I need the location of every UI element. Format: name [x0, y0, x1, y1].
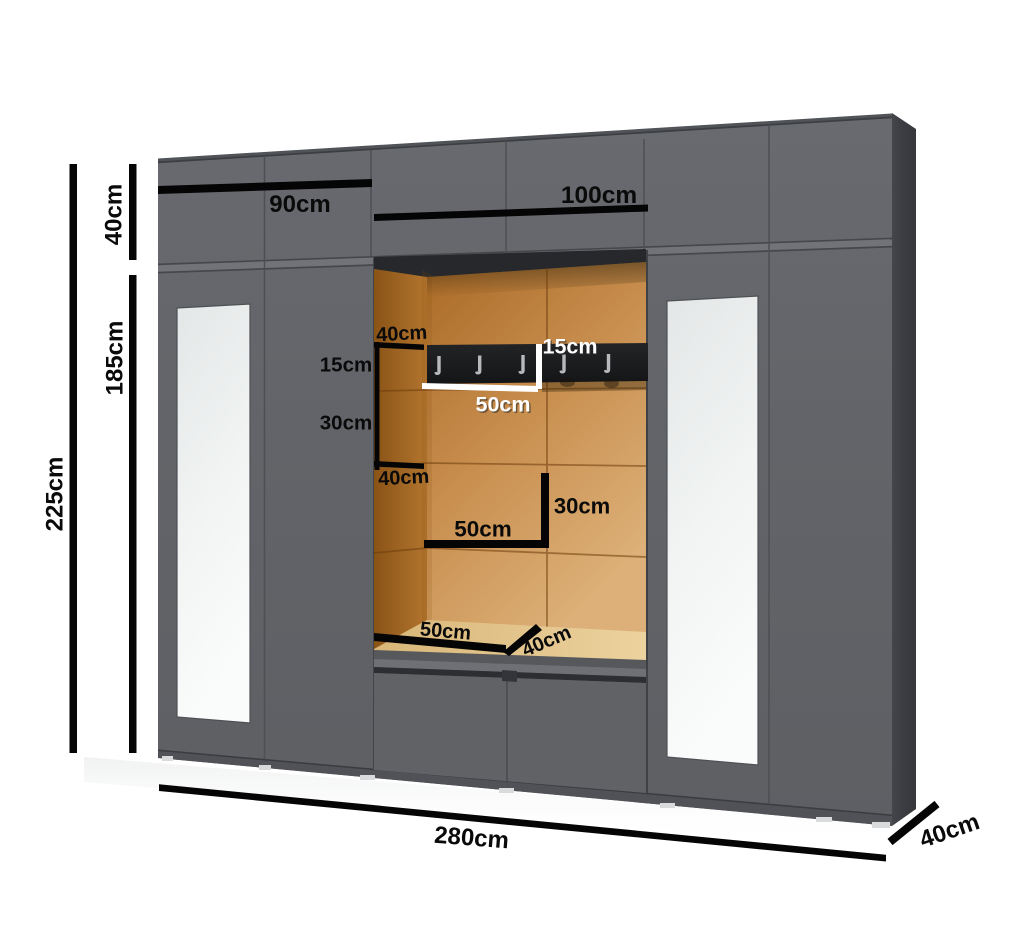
svg-text:15cm: 15cm: [320, 354, 372, 377]
svg-text:40cm: 40cm: [376, 322, 428, 347]
svg-text:50cm: 50cm: [454, 517, 512, 542]
svg-text:50cm: 50cm: [419, 618, 472, 644]
svg-text:225cm: 225cm: [42, 457, 69, 532]
svg-text:90cm: 90cm: [269, 191, 330, 218]
svg-text:100cm: 100cm: [561, 182, 637, 209]
svg-text:30cm: 30cm: [554, 494, 610, 519]
svg-text:40cm: 40cm: [101, 184, 128, 245]
svg-text:30cm: 30cm: [320, 412, 372, 435]
svg-text:185cm: 185cm: [102, 321, 129, 396]
svg-text:40cm: 40cm: [378, 466, 430, 491]
svg-text:50cm: 50cm: [476, 393, 531, 417]
svg-text:15cm: 15cm: [543, 335, 598, 359]
